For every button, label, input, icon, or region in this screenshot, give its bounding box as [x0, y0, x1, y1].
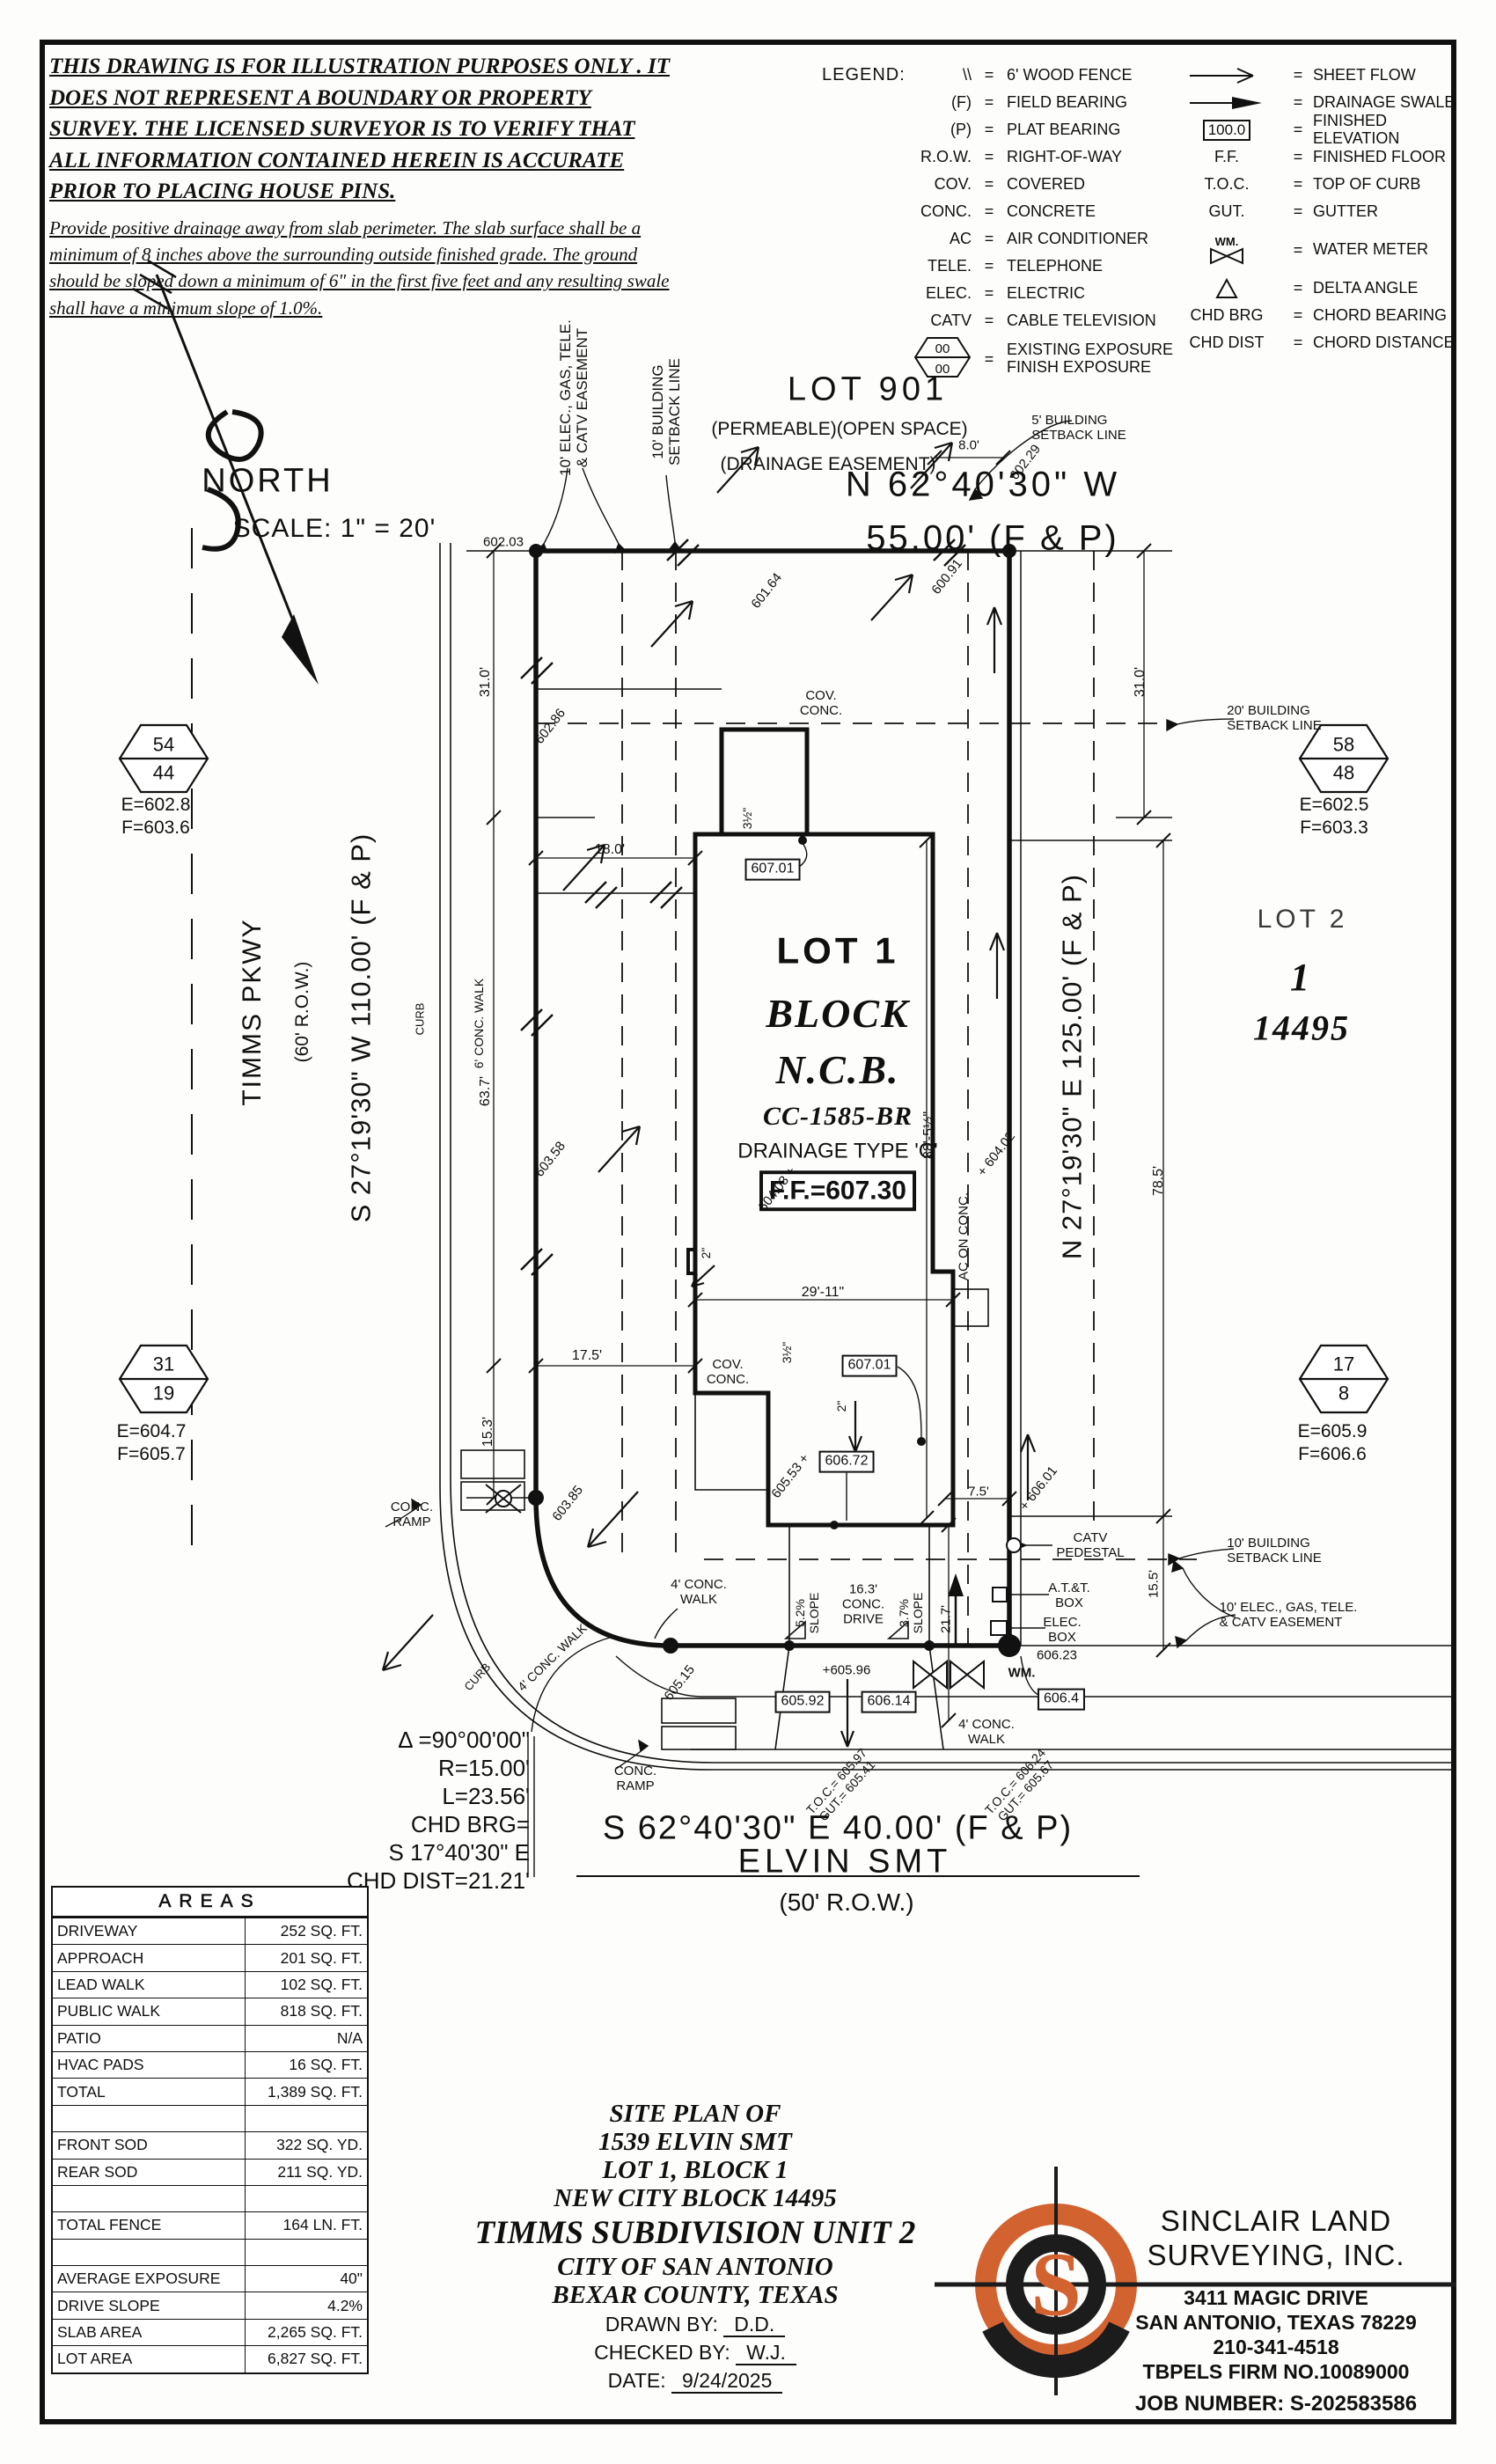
hex3-f: F=605.7	[117, 1444, 186, 1465]
legend-item-6-wood-fence: \\=6' WOOD FENCE	[887, 62, 1177, 89]
legend-item-right-of-way: R.O.W.=RIGHT-OF-WAY	[887, 143, 1177, 171]
felev-60614: 606.14	[862, 1691, 917, 1713]
lot2-block: 1	[1290, 956, 1309, 1000]
lot901-sub1: (PERMEABLE)(OPEN SPACE)	[711, 419, 967, 440]
hex3-top: 31	[153, 1354, 174, 1376]
disclaimer-paragraph-1: THIS DRAWING IS FOR ILLUSTRATION PURPOSE…	[49, 51, 679, 208]
disclaimer-paragraph-2: Provide positive drainage away from slab…	[49, 215, 679, 322]
legend-item-plat-bearing: (P)=PLAT BEARING	[887, 116, 1177, 143]
dim-637: 63.7'	[478, 1076, 494, 1106]
checked-by-label: CHECKED BY:	[594, 2341, 730, 2364]
legend-left-column: \\=6' WOOD FENCE(F)=FIELD BEARING(P)=PLA…	[887, 62, 1177, 384]
hex4-top: 17	[1333, 1354, 1354, 1376]
lot1-ncb: N.C.B.	[775, 1047, 899, 1093]
surveyor-name-2: SURVEYING, INC.	[1091, 2239, 1461, 2273]
dim-2in-b: 2"	[835, 1401, 849, 1412]
lot2-ncb: 14495	[1253, 1008, 1350, 1047]
date-label: DATE:	[608, 2369, 666, 2392]
north-label: NORTH	[202, 463, 333, 501]
hex2-e: E=602.5	[1300, 795, 1369, 816]
dim-31-left: 31.0'	[478, 667, 494, 697]
title-line-2: 1539 ELVIN SMT	[414, 2130, 977, 2155]
curve-data-block: Δ =90°00'00"R=15.00'L=23.56'CHD BRG=S 17…	[317, 1727, 530, 1896]
areas-row-lead-walk: LEAD WALK102 SQ. FT.	[53, 1971, 367, 1998]
curve-data-line-4: CHD BRG=	[317, 1811, 530, 1839]
spot-60596: +605.96	[823, 1664, 871, 1679]
hex4-bottom: 8	[1338, 1383, 1349, 1405]
dim-2in-a: 2"	[700, 1248, 714, 1259]
areas-row-total-fence: TOTAL FENCE164 LN. FT.	[53, 2212, 367, 2239]
lot1-drainage: DRAINAGE TYPE 'C'	[737, 1139, 937, 1162]
hex4-e: E=605.9	[1298, 1421, 1368, 1442]
legend-item-cable-television: CATV=CABLE TELEVISION	[887, 307, 1177, 334]
hex3-bottom: 19	[153, 1383, 174, 1405]
dim-8ft: 8.0'	[958, 439, 979, 454]
bearing-north-1: N 62°40'30" W	[846, 465, 1120, 504]
title-line-3: LOT 1, BLOCK 1	[414, 2158, 977, 2183]
street-sign-icon	[486, 1485, 521, 1513]
label-ramp-1: CONC. RAMP	[391, 1500, 433, 1530]
setback-easement-lines	[536, 551, 1197, 1646]
drainage-swale-icon	[1188, 94, 1265, 112]
legend-item-concrete: CONC.=CONCRETE	[887, 198, 1177, 225]
legend-item-air-conditioner: AC=AIR CONDITIONER	[887, 225, 1177, 253]
title-line-5: TIMMS SUBDIVISION UNIT 2	[414, 2214, 977, 2252]
legend-right-column: =SHEET FLOW=DRAINAGE SWALE100.0=FINISHED…	[1170, 62, 1470, 356]
street-timms-row: (60' R.O.W.)	[292, 962, 313, 1063]
label-catv-ped: CATV PEDESTAL	[1056, 1531, 1124, 1561]
spot-60203: 602.03	[483, 536, 524, 551]
fence-marks	[521, 539, 965, 1275]
hex4-f: F=606.6	[1298, 1444, 1367, 1465]
delta-angle-icon	[1215, 278, 1238, 299]
lot1-title: LOT 1	[776, 929, 898, 971]
areas-row-lot-area: LOT AREA6,827 SQ. FT.	[53, 2346, 367, 2372]
dim-31-right: 31.0'	[1133, 667, 1148, 697]
title-block: SITE PLAN OF 1539 ELVIN SMT LOT 1, BLOCK…	[414, 2101, 977, 2393]
legend-item-gutter: GUT.=GUTTER	[1170, 198, 1470, 225]
lot1-block: BLOCK	[766, 991, 909, 1037]
easement-note-left: 10' ELEC., GAS, TELE. & CATV EASEMENT	[557, 319, 590, 476]
dim-88-5: 88'-5½"	[921, 1111, 937, 1159]
areas-row-driveway: DRIVEWAY252 SQ. FT.	[53, 1918, 367, 1945]
hex1-e: E=602.8	[121, 795, 191, 816]
hex2-bottom: 48	[1333, 763, 1354, 785]
felev-60672: 606.72	[819, 1451, 875, 1473]
felev-60592: 605.92	[775, 1691, 831, 1713]
dim-175: 17.5'	[572, 1348, 602, 1364]
legend-item-finished-elevation: 100.0=FINISHED ELEVATION	[1170, 116, 1470, 143]
hex2-f: F=603.3	[1300, 818, 1368, 839]
legend-item-field-bearing: (F)=FIELD BEARING	[887, 89, 1177, 116]
dim-29-11: 29'-11"	[802, 1285, 844, 1301]
areas-row-rear-sod: REAR SOD211 SQ. YD.	[53, 2159, 367, 2185]
setback-note-left-top: 10' BUILDING SETBACK LINE	[649, 358, 683, 466]
lot901-title: LOT 901	[788, 371, 948, 409]
bearing-east: N 27°19'30" E 125.00' (F & P)	[1056, 874, 1087, 1259]
surveyor-job-number: JOB NUMBER: S-202583586	[1091, 2392, 1461, 2416]
felev-60701-b: 607.01	[842, 1355, 898, 1377]
label-curb-left: CURB	[414, 1003, 428, 1036]
legend-item-chord-distance: CHD DIST=CHORD DISTANCE	[1170, 329, 1470, 356]
areas-row-approach: APPROACH201 SQ. FT.	[53, 1945, 367, 1971]
areas-row-hvac-pads: HVAC PADS16 SQ. FT.	[53, 2051, 367, 2078]
dim-217: 21.7'	[940, 1605, 955, 1633]
sheet-flow-icon	[1188, 67, 1265, 84]
legend-item-covered: COV.=COVERED	[887, 171, 1177, 198]
curve-data-line-5: S 17°40'30" E	[317, 1839, 530, 1867]
easement-note-bottom: 10' ELEC., GAS, TELE. & CATV EASEMENT	[1220, 1601, 1358, 1631]
logo-letter: S	[1030, 2233, 1082, 2337]
legend-item-water-meter: WM.=WATER METER	[1170, 225, 1470, 275]
dim-155: 15.5'	[1148, 1570, 1162, 1598]
areas-row-slab-area: SLAB AREA2,265 SQ. FT.	[53, 2319, 367, 2345]
areas-row-patio: PATION/A	[53, 2025, 367, 2051]
setback-note-20ft: 20' BUILDING SETBACK LINE	[1227, 704, 1322, 734]
label-walk-left: 6' CONC. WALK	[473, 979, 487, 1069]
surveyor-address-2: SAN ANTONIO, TEXAS 78229	[1091, 2310, 1461, 2335]
areas-row-blank	[53, 2239, 367, 2265]
bearing-south: S 62°40'30" E 40.00' (F & P)	[603, 1810, 1073, 1848]
dim-785: 78.5'	[1151, 1166, 1167, 1196]
areas-table: AREAS DRIVEWAY252 SQ. FT.APPROACH201 SQ.…	[51, 1886, 369, 2374]
areas-row-drive-slope: DRIVE SLOPE4.2%	[53, 2292, 367, 2319]
setback-note-right-bottom: 10' BUILDING SETBACK LINE	[1227, 1536, 1322, 1566]
water-meter-icon	[1209, 247, 1244, 265]
curve-data-line-1: Δ =90°00'00"	[317, 1727, 530, 1755]
spot-60623: 606.23	[1037, 1649, 1077, 1664]
surveyor-name-1: SINCLAIR LAND	[1091, 2204, 1461, 2239]
legend-item-top-of-curb: T.O.C.=TOP OF CURB	[1170, 171, 1470, 198]
felev-6064: 606.4	[1038, 1689, 1085, 1711]
label-att-box: A.T.&T. BOX	[1048, 1581, 1090, 1611]
title-line-1: SITE PLAN OF	[414, 2101, 977, 2127]
areas-row-total: TOTAL1,389 SQ. FT.	[53, 2079, 367, 2105]
hex1-top: 54	[153, 735, 174, 757]
label-elec-box: ELEC. BOX	[1043, 1616, 1081, 1646]
checked-by-value: W.J.	[736, 2341, 796, 2365]
street-elvin-row: (50' R.O.W.)	[779, 1888, 913, 1917]
felev-60701-a: 607.01	[745, 859, 801, 881]
dim-35-b: 3½"	[781, 1342, 795, 1363]
property-boundary	[536, 551, 1009, 1646]
label-ramp-2: CONC. RAMP	[614, 1764, 656, 1794]
curve-data-line-2: R=15.00'	[317, 1755, 530, 1783]
areas-table-title: AREAS	[158, 1891, 261, 1911]
scale-label: SCALE: 1" = 20'	[233, 514, 436, 544]
bearing-west: S 27°19'30" W 110.00' (F & P)	[345, 833, 376, 1223]
label-wm-2: WM.	[1008, 1667, 1036, 1682]
legend-item-telephone: TELE.=TELEPHONE	[887, 253, 1177, 280]
areas-row-blank	[53, 2105, 367, 2131]
label-cov-conc-top: COV. CONC.	[800, 689, 842, 719]
hex1-f: F=603.6	[121, 818, 190, 839]
surveyor-address-1: 3411 MAGIC DRIVE	[1091, 2285, 1461, 2310]
curve-data-line-3: L=23.56'	[317, 1783, 530, 1811]
legend-item-electric: ELEC.=ELECTRIC	[887, 280, 1177, 307]
legend-item-chord-bearing: CHD BRG=CHORD BEARING	[1170, 302, 1470, 329]
hex3-e: E=604.7	[117, 1421, 187, 1442]
dim-75: 7.5'	[968, 1485, 989, 1500]
setback-note-5ft: 5' BUILDING SETBACK LINE	[1031, 414, 1126, 444]
street-timms: TIMMS PKWY	[238, 918, 268, 1105]
site-plan-sheet: THIS DRAWING IS FOR ILLUSTRATION PURPOSE…	[0, 0, 1496, 2464]
areas-row-blank	[53, 2185, 367, 2211]
hex2-top: 58	[1333, 735, 1354, 757]
label-slope-52: 5.2% SLOPE	[794, 1593, 822, 1634]
legend-item-delta-angle: =DELTA ANGLE	[1170, 275, 1470, 302]
surveyor-block: SINCLAIR LAND SURVEYING, INC. 3411 MAGIC…	[1091, 2204, 1461, 2416]
legend-item-sheet-flow: =SHEET FLOW	[1170, 62, 1470, 89]
label-cov-conc-bottom: COV. CONC.	[707, 1358, 749, 1388]
drawn-by-label: DRAWN BY:	[605, 2313, 718, 2336]
areas-row-average-exposure: AVERAGE EXPOSURE40"	[53, 2266, 367, 2292]
legend-item-finished-floor: F.F.=FINISHED FLOOR	[1170, 143, 1470, 171]
title-line-4: NEW CITY BLOCK 14495	[414, 2186, 977, 2211]
title-line-6: CITY OF SAN ANTONIO	[414, 2255, 977, 2280]
dim-153: 15.3'	[480, 1417, 496, 1447]
disclaimer-block: THIS DRAWING IS FOR ILLUSTRATION PURPOSE…	[49, 51, 679, 321]
bearing-north-2: 55.00' (F & P)	[866, 518, 1119, 558]
dim-18ft: 18.0'	[595, 842, 625, 858]
label-slope-37: 3.7% SLOPE	[898, 1593, 926, 1634]
lot1-cc: CC-1585-BR	[763, 1102, 913, 1132]
label-walk-right: 4' CONC. WALK	[671, 1578, 727, 1608]
date-value: 9/24/2025	[671, 2369, 782, 2394]
surveyor-phone: 210-341-4518	[1091, 2335, 1461, 2359]
label-ac: AC ON CONC.	[957, 1192, 972, 1280]
hex1-bottom: 44	[153, 763, 174, 785]
dim-porch-35: 3½"	[741, 808, 755, 829]
svg-text:00: 00	[935, 341, 950, 356]
label-drive: 16.3' CONC. DRIVE	[842, 1583, 884, 1628]
label-walk-bottom: 4' CONC. WALK	[958, 1718, 1015, 1748]
surveyor-firm: TBPELS FIRM NO.10089000	[1091, 2359, 1461, 2384]
drawn-by-value: D.D.	[723, 2313, 785, 2337]
lot2-title: LOT 2	[1258, 905, 1348, 935]
street-elvin: ELVIN SMT	[738, 1844, 952, 1881]
title-line-7: BEXAR COUNTY, TEXAS	[414, 2283, 977, 2308]
areas-row-public-walk: PUBLIC WALK818 SQ. FT.	[53, 1998, 367, 2025]
areas-row-front-sod: FRONT SOD322 SQ. YD.	[53, 2132, 367, 2159]
